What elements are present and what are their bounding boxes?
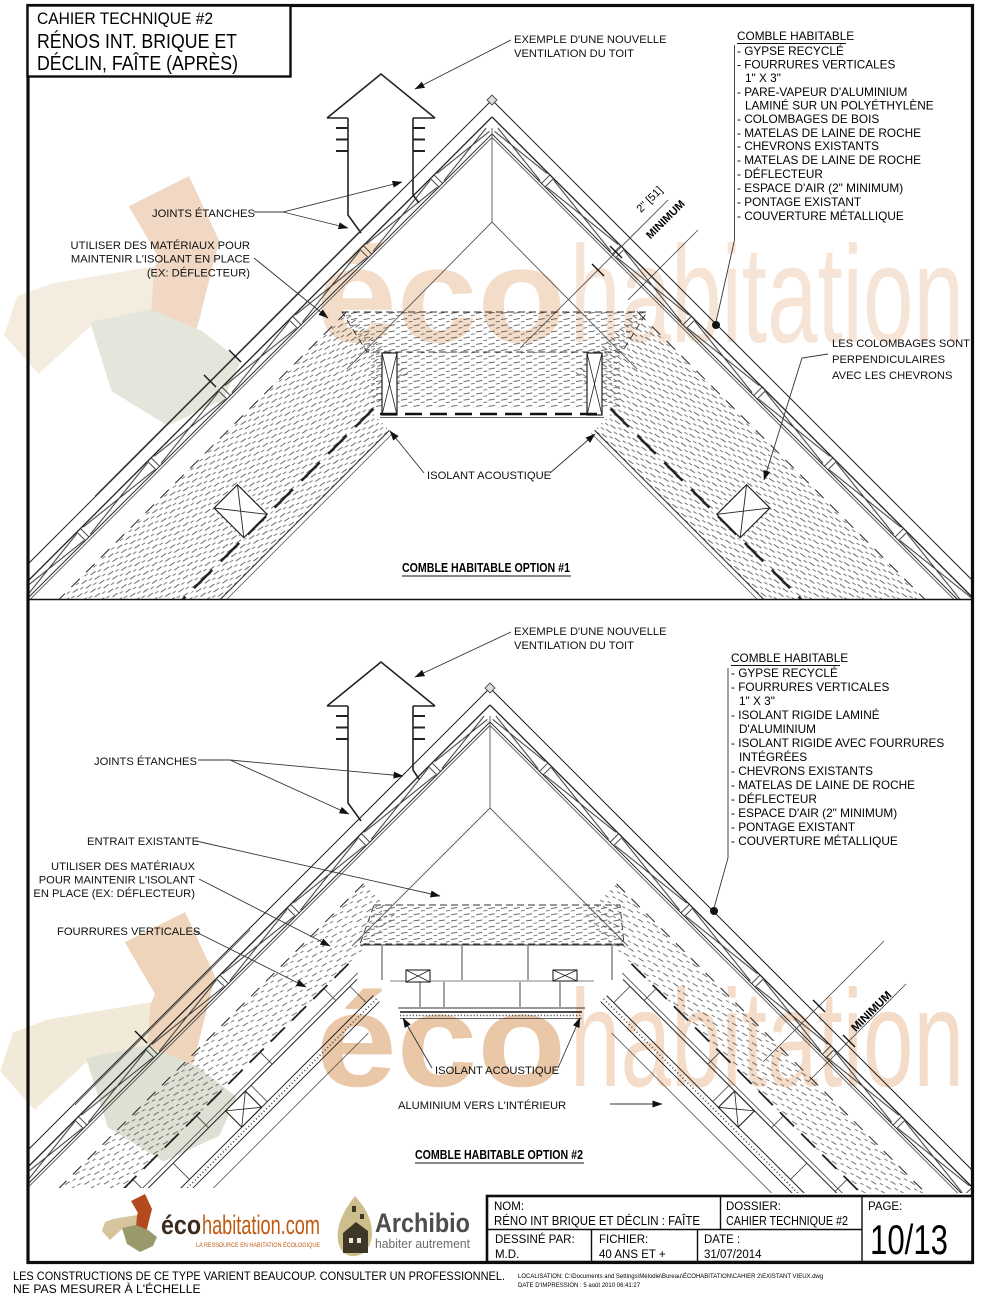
svg-text:- COUVERTURE MÉTALLIQUE: - COUVERTURE MÉTALLIQUE (737, 209, 904, 223)
svg-text:- CHEVRONS EXISTANTS: - CHEVRONS EXISTANTS (737, 139, 879, 153)
svg-text:INTÉGRÉES: INTÉGRÉES (739, 750, 807, 764)
svg-text:VENTILATION DU TOIT: VENTILATION DU TOIT (514, 640, 634, 652)
svg-text:LAMINÉ SUR UN POLYÉTHYLÈNE: LAMINÉ SUR UN POLYÉTHYLÈNE (745, 99, 934, 113)
svg-text:1" X 3": 1" X 3" (739, 694, 775, 708)
svg-text:- ISOLANT RIGIDE LAMINÉ: - ISOLANT RIGIDE LAMINÉ (731, 708, 880, 722)
svg-text:ISOLANT ACOUSTIQUE: ISOLANT ACOUSTIQUE (435, 1065, 559, 1077)
svg-text:- COLOMBAGES DE BOIS: - COLOMBAGES DE BOIS (737, 112, 879, 126)
svg-text:RÉNOS INT. BRIQUE ET: RÉNOS INT. BRIQUE ET (37, 30, 237, 53)
svg-text:UTILISER DES MATÉRIAUX: UTILISER DES MATÉRIAUX (51, 860, 196, 873)
svg-text:LES COLOMBAGES SONT: LES COLOMBAGES SONT (832, 338, 970, 350)
svg-text:- PONTAGE EXISTANT: - PONTAGE EXISTANT (731, 820, 855, 834)
svg-text:- ISOLANT RIGIDE AVEC FOURRURE: - ISOLANT RIGIDE AVEC FOURRURES (731, 736, 944, 750)
svg-text:ALUMINIUM VERS L'INTÉRIEUR: ALUMINIUM VERS L'INTÉRIEUR (398, 1099, 566, 1112)
svg-text:EN PLACE (EX: DÉFLECTEUR): EN PLACE (EX: DÉFLECTEUR) (33, 887, 195, 900)
svg-text:ISOLANT ACOUSTIQUE: ISOLANT ACOUSTIQUE (427, 470, 551, 482)
svg-text:CAHIER TECHNIQUE #2: CAHIER TECHNIQUE #2 (726, 1214, 848, 1228)
svg-text:DATE D'IMPRESSION : 5 août 2: DATE D'IMPRESSION : 5 août 2010 06:41:27 (518, 1283, 641, 1289)
svg-text:DATE :: DATE : (704, 1234, 740, 1246)
svg-text:FICHIER:: FICHIER: (599, 1234, 648, 1246)
svg-text:DESSINÉ PAR:: DESSINÉ PAR: (495, 1233, 575, 1246)
svg-text:AVEC LES CHEVRONS: AVEC LES CHEVRONS (832, 370, 952, 382)
svg-text:10/13: 10/13 (870, 1216, 948, 1263)
svg-text:JOINTS ÉTANCHES: JOINTS ÉTANCHES (94, 755, 197, 768)
svg-text:EXEMPLE D'UNE NOUVELLE: EXEMPLE D'UNE NOUVELLE (514, 626, 667, 638)
svg-text:- DÉFLECTEUR: - DÉFLECTEUR (737, 167, 823, 181)
svg-text:LES CONSTRUCTIONS DE CE TYPE V: LES CONSTRUCTIONS DE CE TYPE VARIENT BEA… (13, 1269, 505, 1283)
svg-text:- DÉFLECTEUR: - DÉFLECTEUR (731, 792, 817, 806)
svg-text:ENTRAIT EXISTANTE: ENTRAIT EXISTANTE (87, 836, 199, 848)
svg-text:CAHIER TECHNIQUE #2: CAHIER TECHNIQUE #2 (37, 10, 213, 28)
svg-text:- PARE-VAPEUR D'ALUMINIUM: - PARE-VAPEUR D'ALUMINIUM (737, 85, 907, 99)
svg-text:habiter autrement: habiter autrement (375, 1236, 470, 1251)
svg-text:M.D.: M.D. (495, 1249, 519, 1261)
svg-text:31/07/2014: 31/07/2014 (704, 1249, 762, 1261)
svg-text:UTILISER DES MATÉRIAUX POUR: UTILISER DES MATÉRIAUX POUR (71, 239, 250, 252)
svg-text:(EX: DÉFLECTEUR): (EX: DÉFLECTEUR) (147, 267, 250, 280)
svg-text:- FOURRURES VERTICALES: - FOURRURES VERTICALES (737, 58, 896, 72)
svg-text:- GYPSE RECYCLÉ: - GYPSE RECYCLÉ (737, 44, 844, 58)
svg-text:PAGE:: PAGE: (868, 1201, 902, 1213)
svg-text:éco: éco (316, 967, 566, 1115)
svg-text:JOINTS ÉTANCHES: JOINTS ÉTANCHES (152, 207, 255, 220)
svg-text:- COUVERTURE MÉTALLIQUE: - COUVERTURE MÉTALLIQUE (731, 834, 898, 848)
svg-text:- MATELAS DE LAINE DE ROCHE: - MATELAS DE LAINE DE ROCHE (737, 126, 921, 140)
svg-text:Archibio: Archibio (375, 1208, 470, 1238)
svg-text:PERPENDICULAIRES: PERPENDICULAIRES (832, 354, 945, 366)
svg-text:- MATELAS DE LAINE DE ROCHE: - MATELAS DE LAINE DE ROCHE (737, 153, 921, 167)
svg-text:- PONTAGE EXISTANT: - PONTAGE EXISTANT (737, 195, 861, 209)
svg-text:- GYPSE RECYCLÉ: - GYPSE RECYCLÉ (731, 666, 838, 680)
svg-text:MAINTENIR L'ISOLANT EN PLACE: MAINTENIR L'ISOLANT EN PLACE (71, 254, 250, 266)
svg-text:COMBLE HABITABLE OPTION #2: COMBLE HABITABLE OPTION #2 (415, 1148, 583, 1162)
svg-text:COMBLE HABITABLE OPTION #1: COMBLE HABITABLE OPTION #1 (402, 561, 570, 575)
svg-text:40 ANS ET +: 40 ANS ET + (599, 1249, 666, 1261)
svg-text:LA RESSOURCE EN HABITATION ÉCO: LA RESSOURCE EN HABITATION ÉCOLOGIQUE (196, 1240, 320, 1249)
svg-text:NOM:: NOM: (494, 1201, 524, 1213)
svg-text:COMBLE HABITABLE: COMBLE HABITABLE (737, 29, 854, 43)
svg-text:LOCALISATION: C:\Documents an: LOCALISATION: C:\Documents and Settings\… (518, 1273, 823, 1280)
svg-text:EXEMPLE D'UNE NOUVELLE: EXEMPLE D'UNE NOUVELLE (514, 34, 667, 46)
svg-text:éco: éco (161, 1210, 201, 1240)
svg-text:- MATELAS DE LAINE DE ROCHE: - MATELAS DE LAINE DE ROCHE (731, 778, 915, 792)
svg-text:POUR MAINTENIR L'ISOLANT: POUR MAINTENIR L'ISOLANT (39, 875, 195, 887)
svg-text:habitation.com: habitation.com (202, 1210, 320, 1240)
svg-text:- ESPACE D'AIR (2" MINIMUM): - ESPACE D'AIR (2" MINIMUM) (737, 181, 903, 195)
svg-text:DÉCLIN, FAÎTE (APRÈS): DÉCLIN, FAÎTE (APRÈS) (37, 52, 238, 75)
svg-text:DOSSIER:: DOSSIER: (726, 1201, 781, 1213)
svg-text:- CHEVRONS EXISTANTS: - CHEVRONS EXISTANTS (731, 764, 873, 778)
svg-text:COMBLE HABITABLE: COMBLE HABITABLE (731, 651, 848, 665)
svg-text:D'ALUMINIUM: D'ALUMINIUM (739, 722, 816, 736)
svg-text:VENTILATION DU TOIT: VENTILATION DU TOIT (514, 48, 634, 60)
svg-text:FOURRURES VERTICALES: FOURRURES VERTICALES (57, 926, 200, 938)
svg-text:- FOURRURES VERTICALES: - FOURRURES VERTICALES (731, 680, 890, 694)
svg-text:1" X 3": 1" X 3" (745, 71, 781, 85)
svg-text:NE PAS MESURER À L'ÉCHELLE: NE PAS MESURER À L'ÉCHELLE (13, 1281, 201, 1294)
svg-text:- ESPACE D'AIR (2" MINIMUM): - ESPACE D'AIR (2" MINIMUM) (731, 806, 897, 820)
svg-text:RÉNO INT BRIQUE ET DÉCLIN : FA: RÉNO INT BRIQUE ET DÉCLIN : FAÎTE (494, 1213, 700, 1228)
